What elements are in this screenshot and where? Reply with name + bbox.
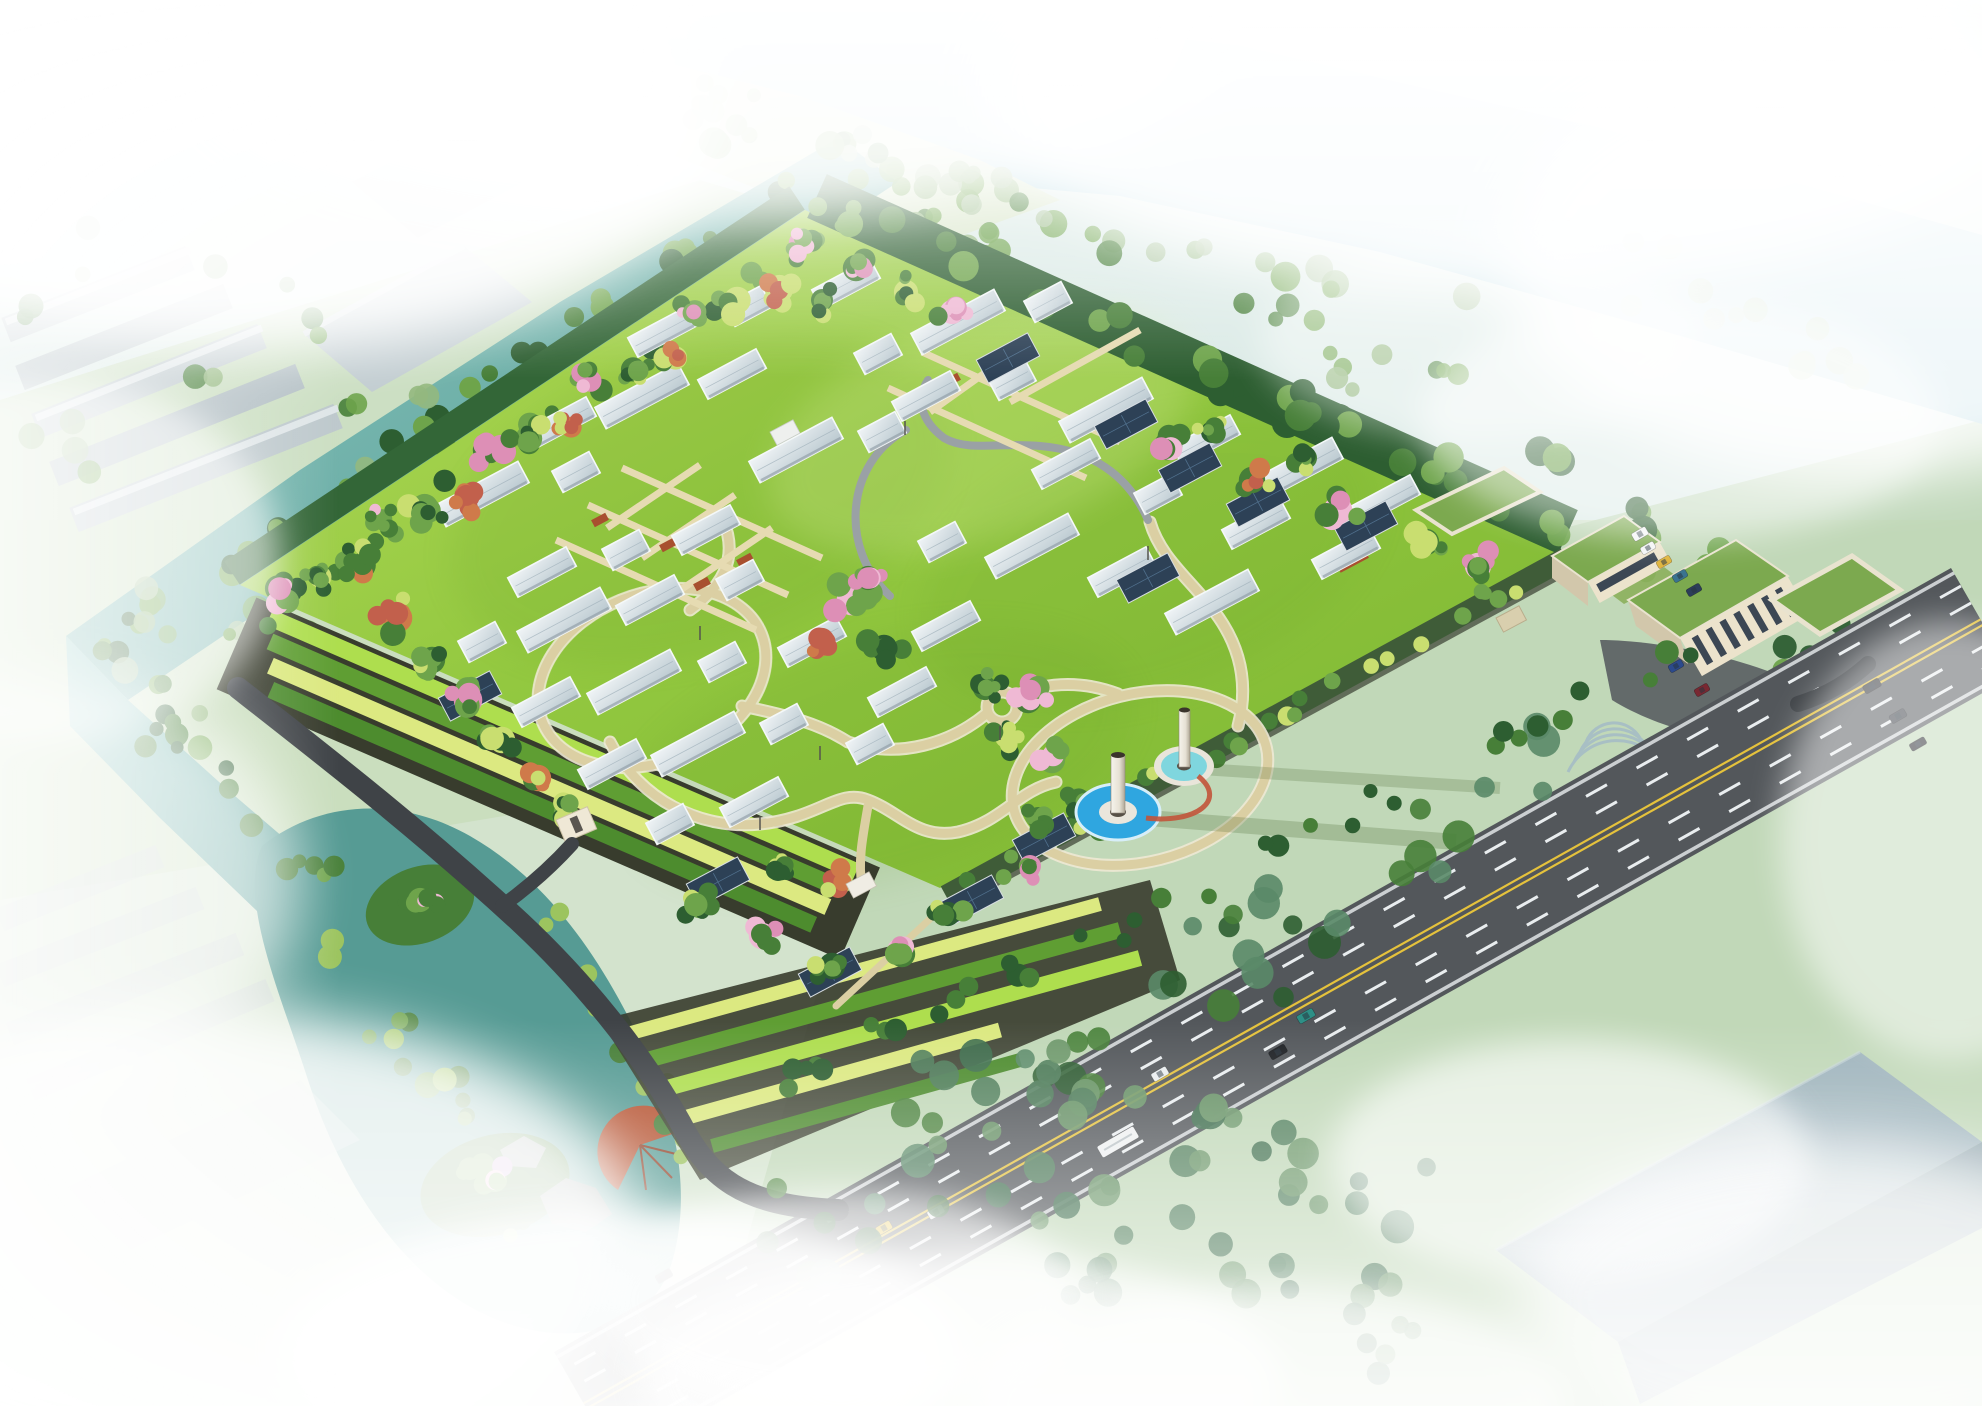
shrub <box>978 680 995 697</box>
cloud <box>1260 240 1700 440</box>
tree <box>1233 939 1265 971</box>
shrub <box>531 771 546 786</box>
tree <box>1490 590 1508 608</box>
shrub <box>933 904 954 925</box>
vent-tower-cylinder <box>1111 755 1125 813</box>
shrub <box>857 567 879 589</box>
shrub <box>823 599 847 623</box>
tree <box>1117 933 1132 948</box>
shrub <box>1020 680 1041 701</box>
shrub <box>420 505 435 520</box>
tree <box>1527 715 1549 737</box>
shrub <box>462 699 477 714</box>
tree <box>1223 905 1242 924</box>
tree <box>1553 710 1573 730</box>
tree <box>996 869 1012 885</box>
tree <box>1364 784 1378 798</box>
shrub <box>808 628 829 649</box>
tree <box>1020 968 1040 988</box>
tree <box>1345 818 1360 833</box>
tree <box>1643 672 1658 687</box>
shrub <box>480 727 504 751</box>
shrub <box>684 893 707 916</box>
shrub <box>1293 443 1312 462</box>
scene-svg <box>0 0 1982 1406</box>
shrub <box>824 960 840 976</box>
shrub <box>876 650 896 670</box>
tree <box>1509 585 1523 599</box>
shrub <box>1249 458 1270 479</box>
tree <box>1283 915 1302 934</box>
shrub <box>445 686 460 701</box>
tree <box>1303 818 1318 833</box>
shrub <box>751 924 772 945</box>
tree <box>1151 888 1171 908</box>
flower-cluster <box>552 411 583 437</box>
tree <box>346 393 367 414</box>
tree <box>1773 635 1797 659</box>
tree <box>959 977 978 996</box>
tree <box>1001 955 1018 972</box>
tree <box>1258 836 1273 851</box>
shrub <box>981 667 994 680</box>
shrub <box>807 956 825 974</box>
tree <box>1207 989 1240 1022</box>
tree <box>1004 850 1018 864</box>
tree <box>1160 971 1187 998</box>
shrub <box>892 944 912 964</box>
aerial-rendering <box>0 0 1982 1406</box>
tree <box>1074 928 1088 942</box>
shrub <box>1315 503 1339 527</box>
shrub <box>462 503 480 521</box>
tree <box>1273 987 1294 1008</box>
shrub <box>436 511 449 524</box>
shrub <box>1046 736 1064 754</box>
shrub <box>565 420 579 434</box>
tree <box>1184 917 1202 935</box>
tree <box>1292 691 1308 707</box>
shrub <box>1039 692 1054 707</box>
tree <box>414 384 439 409</box>
shrub <box>856 629 880 653</box>
shrub <box>576 379 590 393</box>
tree <box>1380 651 1395 666</box>
tree <box>1389 448 1417 476</box>
shrub <box>1030 750 1051 771</box>
tree <box>433 470 455 492</box>
vent-tower-cylinder <box>1179 710 1190 767</box>
shrub <box>1469 557 1487 575</box>
shrub <box>365 511 377 523</box>
shrub <box>1000 735 1018 753</box>
tree <box>1683 647 1699 663</box>
tree <box>1454 607 1471 624</box>
tree <box>1127 912 1143 928</box>
tree <box>1410 799 1431 820</box>
shrub <box>820 882 836 898</box>
shrub <box>359 544 381 566</box>
tree <box>1443 820 1475 852</box>
shrub <box>1263 479 1276 492</box>
shrub <box>378 520 390 532</box>
tree <box>1413 636 1429 652</box>
tree <box>1358 436 1384 462</box>
shrub <box>1192 423 1204 435</box>
shrub <box>384 504 397 517</box>
shrub <box>1203 424 1214 435</box>
shrub <box>501 429 520 448</box>
tree <box>1201 889 1217 905</box>
shrub <box>449 495 463 509</box>
tree <box>1230 737 1248 755</box>
shrub <box>518 431 539 452</box>
tree <box>1287 707 1302 722</box>
shrub <box>831 858 851 878</box>
shrub <box>1003 722 1016 735</box>
tower-top-opening <box>1111 752 1125 758</box>
tree <box>1428 860 1451 883</box>
tree <box>1493 721 1514 742</box>
shrub <box>1150 437 1173 460</box>
tree <box>1324 910 1351 937</box>
shrub <box>1022 859 1037 874</box>
shrub <box>1404 521 1428 545</box>
tree <box>1474 777 1495 798</box>
shrub <box>1021 804 1035 818</box>
tower-top-opening <box>1179 708 1190 713</box>
shrub <box>774 865 790 881</box>
tree <box>550 903 569 922</box>
tree <box>1324 673 1341 690</box>
tree <box>1533 782 1552 801</box>
shrub <box>338 566 355 583</box>
shrub <box>1348 508 1365 525</box>
tree <box>1363 658 1379 674</box>
tree <box>1474 584 1489 599</box>
shrub <box>431 646 447 662</box>
shrub <box>385 602 408 625</box>
shrub <box>418 889 436 907</box>
shrub <box>827 572 851 596</box>
tree <box>1387 796 1402 811</box>
tree <box>1254 874 1283 903</box>
tree <box>1570 682 1589 701</box>
shrub <box>1060 787 1076 803</box>
shrub <box>560 794 578 812</box>
shrub <box>411 647 431 667</box>
shrub <box>1030 820 1049 839</box>
tree <box>1655 640 1679 664</box>
